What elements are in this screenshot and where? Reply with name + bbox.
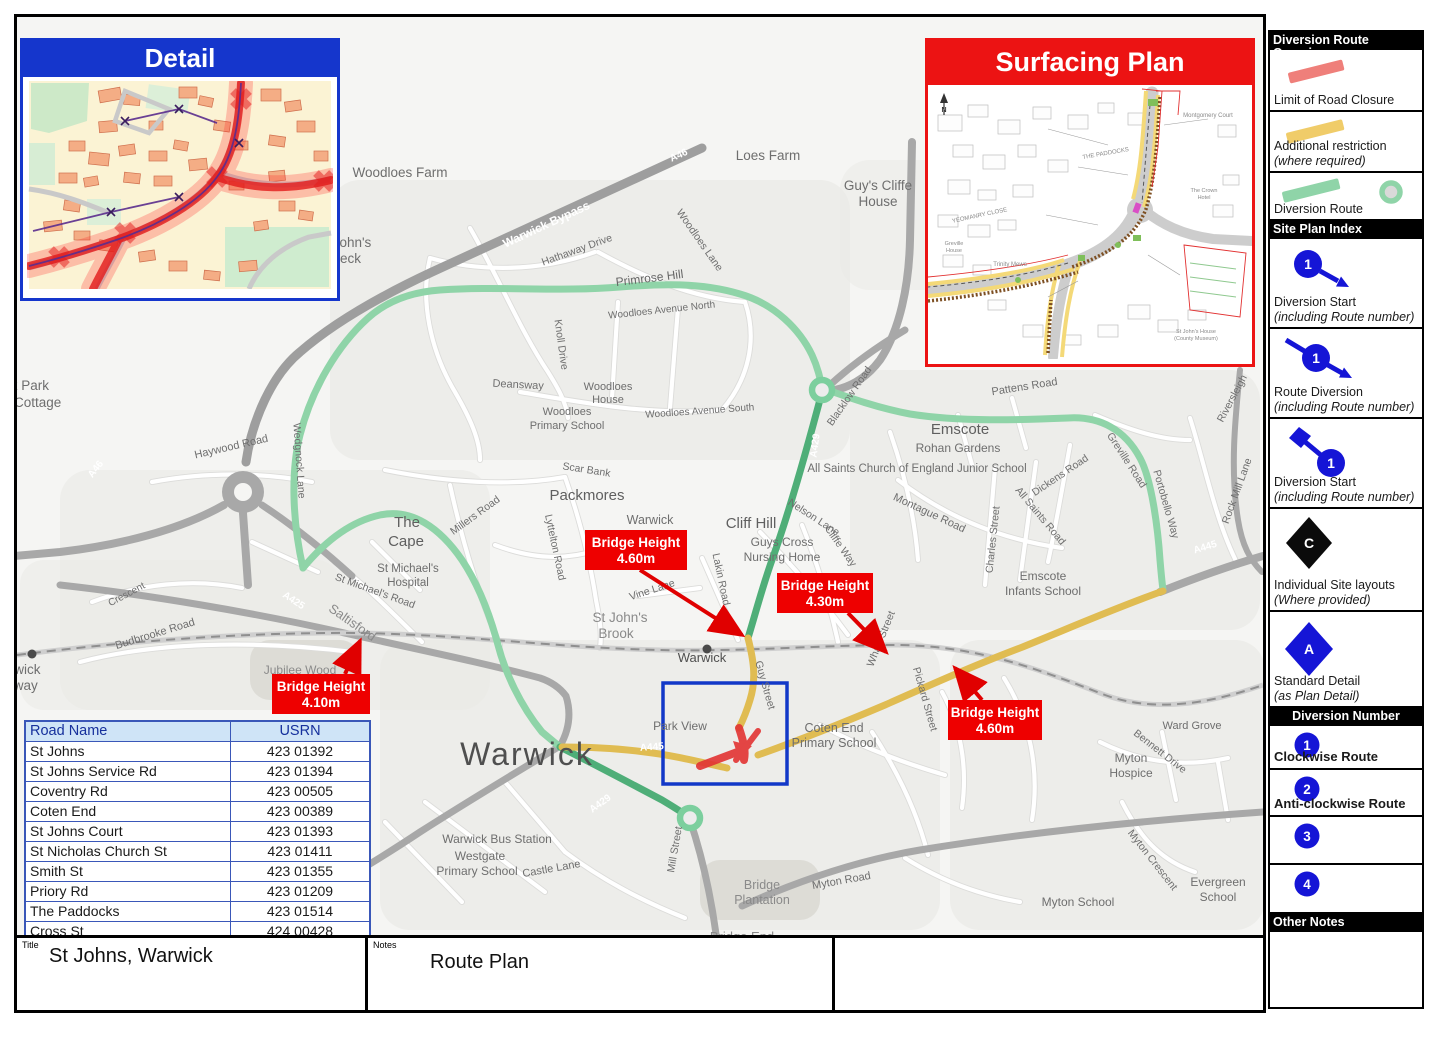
legend-item-num-2: 2Anti-clockwise Route <box>1270 770 1422 817</box>
usrn-table: Road NameUSRN St Johns423 01392St Johns … <box>24 720 371 943</box>
map-label: St John's <box>592 610 647 625</box>
usrn-row: Coventry Rd423 00505 <box>25 782 370 802</box>
legend-label-line: (Where provided) <box>1274 593 1395 607</box>
svg-text:1: 1 <box>1304 256 1312 272</box>
drawing-title: St Johns, Warwick <box>49 945 213 968</box>
callout-line2: 4.60m <box>617 551 655 566</box>
map-label: Warwick <box>678 650 727 665</box>
map-label: Packmores <box>549 487 624 504</box>
map-label: House <box>946 248 962 254</box>
map-label: Cottage <box>17 395 61 410</box>
legend-item-label: Diversion Start(including Route number) <box>1274 295 1414 324</box>
map-label: House <box>858 194 897 209</box>
legend-item-num-1: 1Clockwise Route <box>1270 726 1422 770</box>
legend-label-line: (including Route number) <box>1274 400 1414 414</box>
surfacing-inset-title: Surfacing Plan <box>928 41 1252 85</box>
legend-item-label: Clockwise Route <box>1274 750 1378 765</box>
legend-item-standard-detail-diamond-A: AStandard Detail(as Plan Detail) <box>1270 612 1422 708</box>
map-label: St Michael's <box>377 563 439 575</box>
legend-label-line: Diversion Start <box>1274 475 1414 489</box>
callout-line2: 4.60m <box>976 721 1014 736</box>
map-label: (County Museum) <box>1174 336 1218 342</box>
legend-section-header: Site Plan Index <box>1270 221 1422 239</box>
map-label: Emscote <box>931 421 989 438</box>
legend-item-restriction-line: Additional restriction(where required) <box>1270 112 1422 173</box>
map-label: Myton School <box>1042 895 1115 909</box>
surfacing-inset-map: NMontgomery CourtTHE PADDOCKSYEOMANRY CL… <box>928 85 1252 359</box>
legend-item-closure-line: Limit of Road Closure <box>1270 50 1422 112</box>
map-label: Bridge <box>744 878 780 892</box>
legend-item-diversion-start-1: 1Diversion Start(including Route number) <box>1270 239 1422 329</box>
map-label: Ward Grove <box>1163 720 1222 732</box>
legend-item-none <box>1270 932 1422 1007</box>
usrn-cell: 423 01392 <box>231 742 371 762</box>
legend-label-line: (including Route number) <box>1274 310 1414 324</box>
map-label: Evergreen <box>1190 875 1245 889</box>
detail-inset-map <box>27 81 333 289</box>
usrn-cell: 423 01394 <box>231 762 371 782</box>
detail-inset-title: Detail <box>23 41 337 77</box>
legend-section-header: Other Notes <box>1270 914 1422 932</box>
svg-text:3: 3 <box>1303 829 1311 844</box>
map-label: Warwick <box>17 662 41 677</box>
map-label: Rohan Gardens <box>916 441 1001 455</box>
legend-label-line: Diversion Start <box>1274 295 1414 309</box>
legend-section-header: Diversion Route Overview <box>1270 32 1422 50</box>
usrn-row: St Johns423 01392 <box>25 742 370 762</box>
site-layout-diamond-icon: C <box>1270 511 1418 584</box>
usrn-row: Coten End423 00389 <box>25 802 370 822</box>
usrn-cell: 423 00505 <box>231 782 371 802</box>
legend-item-label: Standard Detail(as Plan Detail) <box>1274 674 1360 703</box>
svg-text:1: 1 <box>1327 455 1335 471</box>
legend-item-route-diversion-1: 1Route Diversion(including Route number) <box>1270 329 1422 419</box>
map-label: Montgomery Court <box>1183 113 1233 119</box>
road-name-cell: Coventry Rd <box>25 782 231 802</box>
legend-item-label: Additional restriction(where required) <box>1274 139 1387 168</box>
map-label: Loes Farm <box>736 148 801 163</box>
title-block: Title St Johns, Warwick Notes Route Plan… <box>17 935 1263 1010</box>
legend-label-line: Standard Detail <box>1274 674 1360 688</box>
legend-label-line: Diversion Route <box>1274 202 1363 216</box>
legend-item-label: Anti-clockwise Route <box>1274 797 1405 812</box>
legend-label-line: (as Plan Detail) <box>1274 689 1360 703</box>
legend-item-num-4: 4 <box>1270 865 1422 914</box>
legend-item-label: Route Diversion(including Route number) <box>1274 385 1414 414</box>
usrn-cell: 423 01393 <box>231 822 371 842</box>
usrn-col-header: Road Name <box>25 721 231 742</box>
legend-label-line: (including Route number) <box>1274 490 1414 504</box>
road-name-cell: St Johns Service Rd <box>25 762 231 782</box>
road-name-cell: St Johns <box>25 742 231 762</box>
map-label: Primary School <box>792 736 877 750</box>
usrn-row: The Paddocks423 01514 <box>25 902 370 922</box>
callout-line1: Bridge Height <box>951 705 1040 720</box>
callout-line1: Bridge Height <box>592 535 681 550</box>
road-name-cell: The Paddocks <box>25 902 231 922</box>
usrn-table-wrap: Road NameUSRN St Johns423 01392St Johns … <box>24 720 371 943</box>
legend-item-site-layout-diamond-C: CIndividual Site layouts(Where provided) <box>1270 509 1422 612</box>
map-label: Plantation <box>734 893 790 907</box>
legend-label-line: Limit of Road Closure <box>1274 93 1394 107</box>
map-label: Woodloes <box>584 381 633 393</box>
map-label: The Crown <box>1191 188 1218 194</box>
map-label: All Saints Church of England Junior Scho… <box>807 463 1026 475</box>
map-label: Hospice <box>1109 766 1153 780</box>
map-label: Parkway <box>17 678 38 693</box>
usrn-cell: 423 01355 <box>231 862 371 882</box>
num-icon: 4 <box>1270 867 1418 906</box>
svg-text:A: A <box>1304 641 1314 657</box>
usrn-header-row: Road NameUSRN <box>25 721 370 742</box>
map-label: Woodloes <box>543 406 592 418</box>
map-label: Trinity Mews <box>993 262 1026 268</box>
legend-item-label: Diversion Route <box>1274 202 1363 216</box>
map-label: N <box>941 107 946 114</box>
road-name-cell: Smith St <box>25 862 231 882</box>
legend-label-line: Route Diversion <box>1274 385 1414 399</box>
callout-line2: 4.10m <box>302 695 340 710</box>
map-label: Nursing Home <box>744 550 821 564</box>
map-label: Cape <box>388 533 424 550</box>
legend-label-line: Clockwise Route <box>1274 750 1378 765</box>
legend-label-line: (where required) <box>1274 154 1387 168</box>
usrn-row: Priory Rd423 01209 <box>25 882 370 902</box>
num-icon: 3 <box>1270 819 1418 858</box>
map-label: Cliff Hill <box>726 515 777 532</box>
legend-label-line: Additional restriction <box>1274 139 1387 153</box>
map-label: Guys Cross <box>751 535 814 549</box>
usrn-row: St Johns Court423 01393 <box>25 822 370 842</box>
usrn-col-header: USRN <box>231 721 371 742</box>
map-label: Primary School <box>436 864 517 878</box>
map-label: School <box>1200 890 1237 904</box>
svg-text:2: 2 <box>1303 782 1311 797</box>
legend-item-diversion-line: Diversion Route <box>1270 173 1422 221</box>
notes-label: Notes <box>373 940 397 950</box>
map-label: Coten End <box>804 721 863 735</box>
map-label: Myton <box>1115 751 1148 765</box>
usrn-row: St Nicholas Church St423 01411 <box>25 842 370 862</box>
road-name-cell: Coten End <box>25 802 231 822</box>
map-label: Park View <box>653 719 707 733</box>
callout-line2: 4.30m <box>806 594 844 609</box>
title-label: Title <box>22 940 39 950</box>
road-name-cell: Priory Rd <box>25 882 231 902</box>
legend-label-line: Individual Site layouts <box>1274 578 1395 592</box>
usrn-cell: 423 01514 <box>231 902 371 922</box>
map-label: St John's House <box>1176 329 1216 335</box>
map-label: Hotel <box>1198 195 1211 201</box>
legend-label-line: Anti-clockwise Route <box>1274 797 1405 812</box>
svg-text:4: 4 <box>1303 877 1311 892</box>
map-label: House <box>592 394 624 406</box>
legend-item-label: Diversion Start(including Route number) <box>1274 475 1414 504</box>
map-label: Greville <box>945 241 964 247</box>
map-label: Westgate <box>455 849 506 863</box>
usrn-row: St Johns Service Rd423 01394 <box>25 762 370 782</box>
legend-section-header: Diversion Number <box>1270 708 1422 726</box>
detail-inset: Detail <box>20 38 340 301</box>
svg-text:1: 1 <box>1312 350 1320 366</box>
legend-item-label: Limit of Road Closure <box>1274 93 1394 107</box>
map-label: A445 <box>640 741 665 754</box>
legend-sidebar: Diversion Route OverviewLimit of Road Cl… <box>1268 30 1424 1009</box>
svg-text:C: C <box>1304 535 1314 551</box>
notes-cell: Notes Route Plan <box>368 938 835 1010</box>
title-cell: Title St Johns, Warwick <box>17 938 368 1010</box>
usrn-cell: 423 01209 <box>231 882 371 902</box>
map-label: The <box>394 514 420 531</box>
map-label: Warwick <box>627 513 675 527</box>
usrn-cell: 423 01411 <box>231 842 371 862</box>
road-name-cell: St Johns Court <box>25 822 231 842</box>
road-name-cell: St Nicholas Church St <box>25 842 231 862</box>
usrn-cell: 423 00389 <box>231 802 371 822</box>
map-label: Woodloes Farm <box>352 165 447 180</box>
map-label: Primary School <box>530 420 605 432</box>
callout-line1: Bridge Height <box>781 578 870 593</box>
map-label: Hospital <box>387 577 429 589</box>
map-label: Emscote <box>1020 569 1067 583</box>
callout-line1: Bridge Height <box>277 679 366 694</box>
map-label: Guy's Cliffe <box>844 178 912 193</box>
map-label: Wedgnock Park <box>17 378 49 393</box>
map-label: Brook <box>598 626 634 641</box>
notes-value: Route Plan <box>430 951 529 974</box>
map-label: Warwick Bus Station <box>442 832 552 846</box>
map-label: Warwick <box>460 736 594 772</box>
surfacing-plan-inset: Surfacing Plan <box>925 38 1255 367</box>
legend-item-num-3: 3 <box>1270 817 1422 865</box>
legend-item-diversion-start-flag-1: 1Diversion Start(including Route number) <box>1270 419 1422 509</box>
map-label: Infants School <box>1005 584 1081 598</box>
title-block-right: WARWICKSHIRE HIGHWAYS Balfour Beatty Dra… <box>835 938 1263 1010</box>
legend-item-label: Individual Site layouts(Where provided) <box>1274 578 1395 607</box>
usrn-row: Smith St423 01355 <box>25 862 370 882</box>
